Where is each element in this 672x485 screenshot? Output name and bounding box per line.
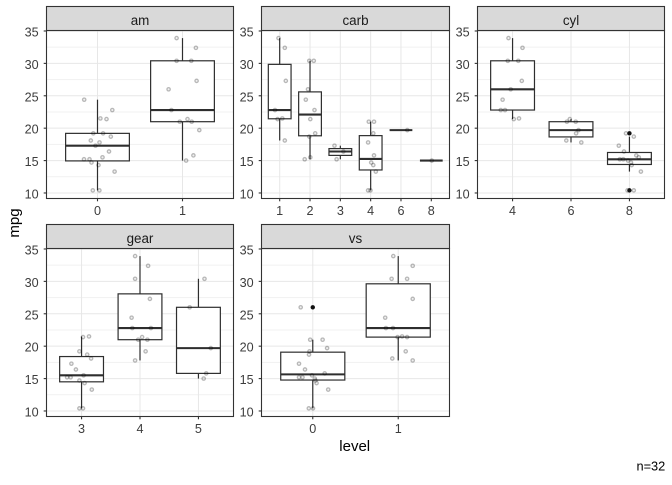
svg-text:35: 35 (240, 25, 254, 39)
svg-text:mpg: mpg (6, 208, 23, 237)
svg-text:gear: gear (127, 231, 154, 246)
svg-text:6: 6 (397, 204, 404, 218)
svg-text:15: 15 (25, 155, 39, 169)
svg-text:4: 4 (367, 204, 374, 218)
svg-text:cyl: cyl (563, 13, 579, 28)
svg-text:30: 30 (25, 276, 39, 290)
svg-text:25: 25 (456, 90, 470, 104)
svg-text:10: 10 (240, 187, 254, 201)
svg-text:25: 25 (25, 90, 39, 104)
svg-text:6: 6 (567, 204, 574, 218)
svg-text:1: 1 (395, 422, 402, 436)
svg-text:15: 15 (456, 155, 470, 169)
svg-text:3: 3 (78, 422, 85, 436)
svg-text:level: level (339, 438, 370, 455)
svg-text:1: 1 (179, 204, 186, 218)
svg-text:25: 25 (25, 308, 39, 322)
svg-text:2: 2 (307, 204, 314, 218)
svg-text:35: 35 (456, 25, 470, 39)
svg-text:8: 8 (626, 204, 633, 218)
svg-text:15: 15 (25, 373, 39, 387)
svg-text:10: 10 (240, 405, 254, 419)
svg-text:30: 30 (25, 58, 39, 72)
svg-text:10: 10 (25, 187, 39, 201)
svg-text:vs: vs (349, 231, 363, 246)
svg-text:25: 25 (240, 90, 254, 104)
svg-text:35: 35 (25, 243, 39, 257)
svg-text:0: 0 (309, 422, 316, 436)
svg-text:20: 20 (240, 341, 254, 355)
svg-text:30: 30 (456, 58, 470, 72)
svg-text:carb: carb (342, 13, 368, 28)
svg-text:8: 8 (428, 204, 435, 218)
svg-text:10: 10 (456, 187, 470, 201)
svg-text:20: 20 (25, 123, 39, 137)
svg-text:5: 5 (195, 422, 202, 436)
svg-text:1: 1 (276, 204, 283, 218)
svg-text:3: 3 (337, 204, 344, 218)
svg-text:35: 35 (25, 25, 39, 39)
svg-text:10: 10 (25, 405, 39, 419)
svg-text:4: 4 (136, 422, 143, 436)
svg-text:20: 20 (240, 123, 254, 137)
svg-text:n=32: n=32 (636, 459, 665, 474)
svg-text:30: 30 (240, 276, 254, 290)
svg-text:4: 4 (509, 204, 516, 218)
svg-text:35: 35 (240, 243, 254, 257)
svg-text:0: 0 (94, 204, 101, 218)
svg-text:20: 20 (456, 123, 470, 137)
svg-text:am: am (131, 13, 150, 28)
svg-text:30: 30 (240, 58, 254, 72)
svg-text:25: 25 (240, 308, 254, 322)
svg-text:15: 15 (240, 373, 254, 387)
svg-text:20: 20 (25, 341, 39, 355)
svg-text:15: 15 (240, 155, 254, 169)
